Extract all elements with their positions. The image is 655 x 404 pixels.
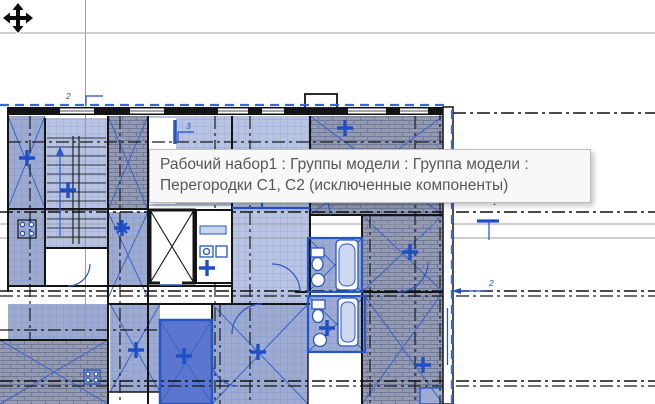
room-kitchen[interactable]	[8, 210, 45, 292]
revit-canvas[interactable]: 2 3 1 2 Рабочий набор1 : Группы модели :…	[0, 0, 655, 404]
elevator-shaft[interactable]	[150, 210, 194, 285]
sink[interactable]	[314, 334, 327, 347]
tooltip-line-1: Рабочий набор1 : Группы модели : Группа …	[160, 154, 580, 175]
elevator-door-opening	[160, 279, 182, 285]
element-tooltip: Рабочий набор1 : Группы модели : Группа …	[149, 149, 591, 203]
dim-tag-right-label: 2	[488, 278, 494, 288]
stairwell[interactable]	[45, 118, 108, 286]
toilet[interactable]	[313, 310, 324, 323]
grid-tag-top-left[interactable]: 2	[65, 91, 103, 106]
sink[interactable]	[312, 274, 325, 287]
grid-tag-top-label: 2	[65, 91, 71, 101]
corridor-mid[interactable]	[232, 208, 310, 304]
wall-tag-label: 3	[186, 121, 191, 131]
move-cursor-icon	[0, 0, 36, 36]
service-shaft[interactable]	[196, 210, 232, 283]
toilet[interactable]	[312, 258, 323, 271]
tooltip-line-2: Перегородки С1, С2 (исключенные компонен…	[160, 175, 580, 196]
dimension-right[interactable]: 1	[477, 201, 499, 240]
